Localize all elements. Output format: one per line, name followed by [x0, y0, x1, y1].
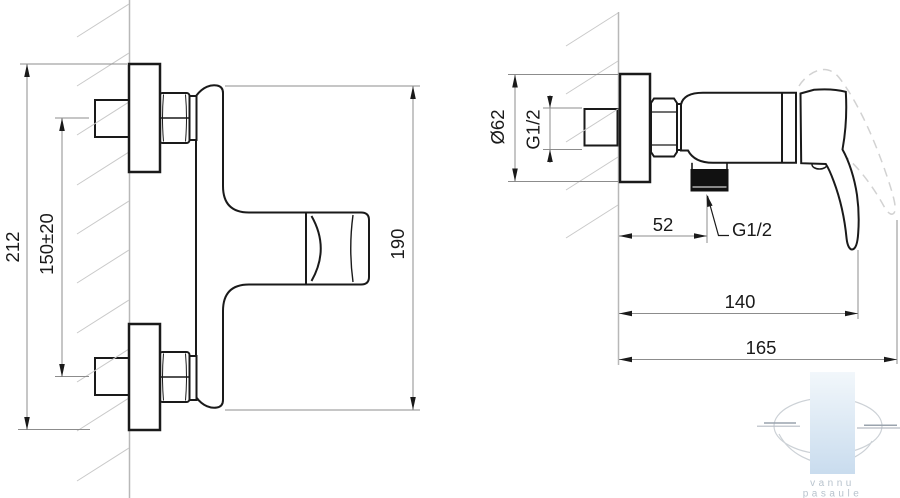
technical-drawing-page: vannu pasaule — [0, 0, 900, 498]
arrow-up-icon — [410, 86, 416, 99]
dim-140-label: 140 — [725, 291, 756, 312]
inlet-stubs — [95, 100, 129, 395]
arrow-down-icon — [59, 364, 65, 377]
top-hex-nut — [160, 93, 190, 143]
arrow-left-icon — [619, 233, 632, 239]
arrow-right-icon — [694, 233, 707, 239]
watermark-text-line2: pasaule — [803, 489, 863, 498]
arrow-right-icon — [884, 357, 897, 363]
dim-190-label: 190 — [387, 229, 408, 260]
arrow-up-icon — [512, 75, 518, 88]
front-view: 212 150±20 190 — [2, 0, 420, 498]
top-escutcheon — [129, 64, 160, 172]
watermark-text-line1: vannu — [810, 478, 855, 489]
arrow-up-icon — [707, 194, 713, 207]
wall-hatching — [77, 4, 129, 481]
hex-nut-side — [651, 99, 677, 157]
handle-side — [801, 89, 859, 249]
arrow-left-icon — [619, 357, 632, 363]
arrow-down-icon — [547, 96, 553, 108]
dimension-outlet-offset: 52 — [619, 197, 707, 243]
dim-d62-label: Ø62 — [487, 110, 508, 145]
arrow-down-icon — [410, 397, 416, 410]
arrow-down-icon — [512, 169, 518, 182]
bottom-hex-nut — [160, 352, 190, 402]
bottom-escutcheon — [129, 324, 160, 430]
watermark-logo: vannu pasaule — [757, 372, 900, 498]
dim-150-label: 150±20 — [36, 213, 57, 275]
faucet-dimension-drawing: vannu pasaule — [0, 0, 900, 498]
watermark-blue-bar — [810, 372, 855, 474]
faucet-body-front — [196, 85, 306, 407]
escutcheon-side — [620, 74, 650, 182]
arrow-up-icon — [59, 118, 65, 131]
arrow-up-icon — [547, 150, 553, 163]
bottom-inlet-stub — [95, 358, 129, 395]
side-view: Ø62 G1/2 52 G1/2 — [487, 12, 897, 365]
dim-g12-outlet-label: G1/2 — [732, 219, 772, 240]
outlet-thread-callout: G1/2 — [707, 194, 773, 240]
arrow-left-icon — [619, 311, 632, 317]
dimension-inlet-thread: G1/2 — [523, 95, 583, 163]
handle-front — [306, 213, 369, 285]
faucet-body-side — [681, 93, 796, 163]
dim-212-label: 212 — [2, 232, 23, 263]
shower-outlet — [691, 163, 729, 192]
dim-165-label: 165 — [746, 337, 777, 358]
escutcheons — [129, 64, 160, 430]
arrow-up-icon — [24, 64, 30, 77]
outlet-thread-black — [691, 169, 729, 192]
arrow-right-icon — [845, 311, 858, 317]
arrow-down-icon — [24, 417, 30, 430]
dimension-inlet-spacing: 150±20 — [36, 118, 89, 377]
dim-g12-inlet-label: G1/2 — [523, 109, 544, 149]
dimension-depth-to-handle: 140 — [619, 250, 858, 319]
dim-52-label: 52 — [653, 214, 674, 235]
